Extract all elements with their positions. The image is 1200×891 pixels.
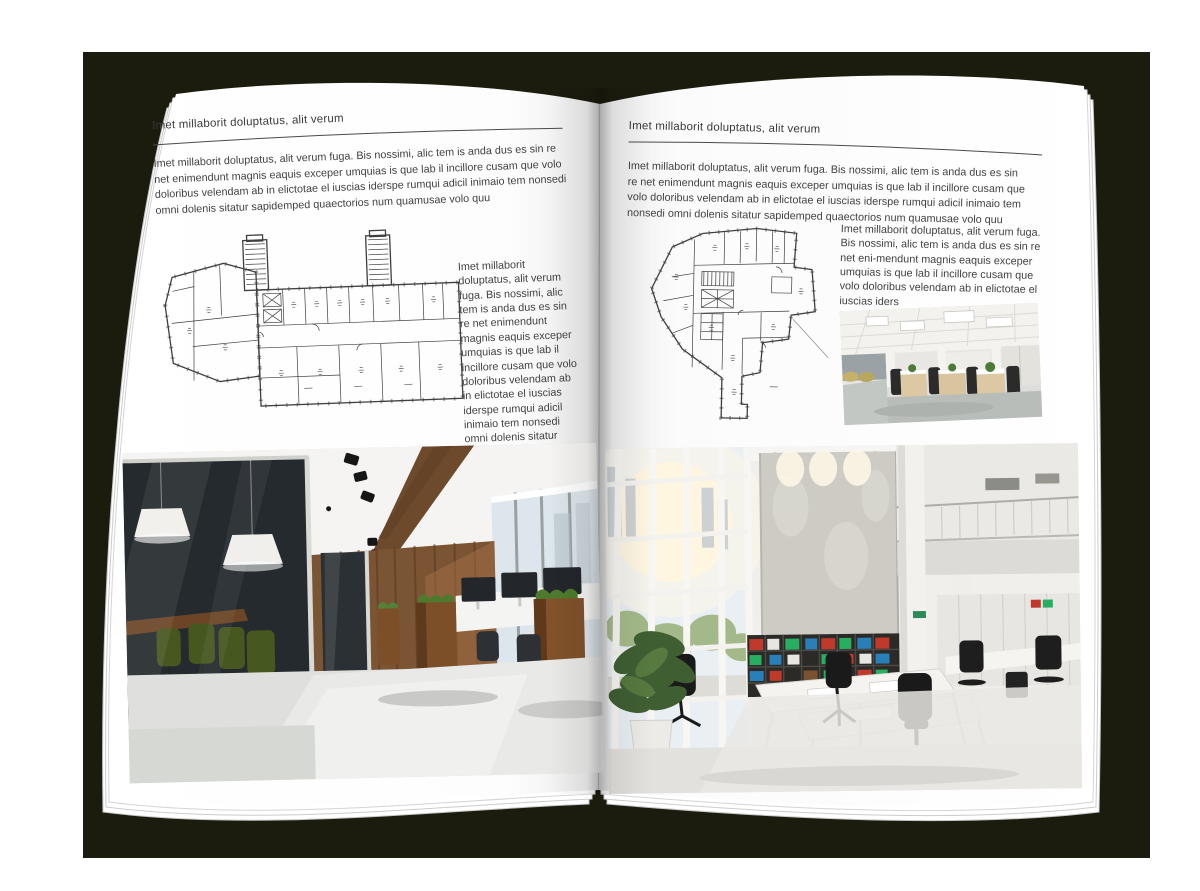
magazine-mockup-scene: Imet millaborit doluptatus, alit verum I… (0, 0, 1200, 891)
floor-plan-right (641, 216, 835, 422)
office-photo-right-large (605, 443, 1082, 794)
right-page-title: Imet millaborit doluptatus, alit verum (629, 120, 1087, 141)
right-header-rule (628, 138, 1042, 158)
office-photo-left-large (122, 443, 603, 784)
left-intro-paragraph: Imet millaborit doluptatus, alit verum f… (153, 141, 569, 219)
floor-plan-left (158, 220, 465, 419)
office-photo-right-small (840, 303, 1043, 425)
right-sidebar-text: Imet millaborit doluptatus, alit verum f… (839, 222, 1049, 312)
